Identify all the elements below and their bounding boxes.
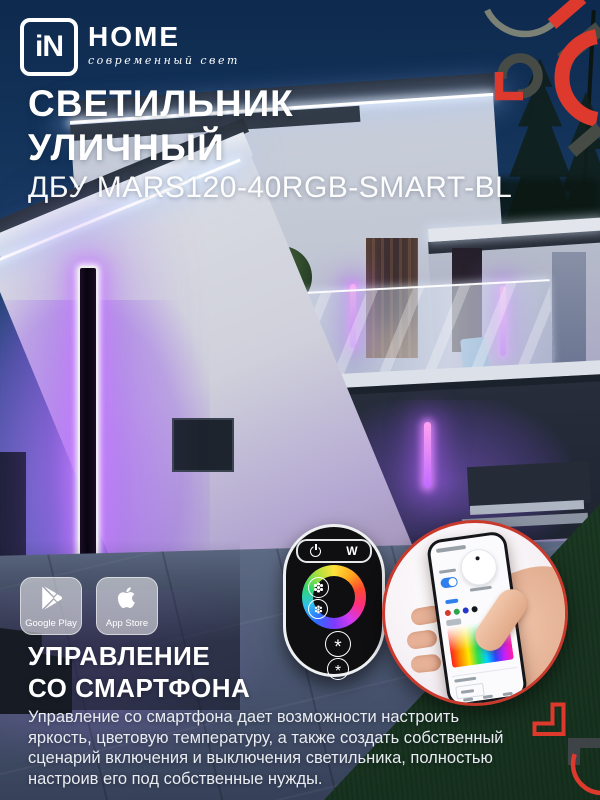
logo-text: HOME современный свет xyxy=(88,18,240,67)
logo-tagline: современный свет xyxy=(88,54,240,67)
title-line-1: СВЕТИЛЬНИК xyxy=(28,82,294,126)
decor-red-bar xyxy=(552,0,582,24)
app-chip xyxy=(446,618,462,626)
effect-button-large: * xyxy=(325,631,351,657)
dark-window xyxy=(172,418,234,472)
page-title: СВЕТИЛЬНИК УЛИЧНЫЙ xyxy=(28,82,294,170)
app-caption xyxy=(470,586,492,592)
body-line: Управление со смартфона дает возможности… xyxy=(28,707,528,728)
google-play-icon xyxy=(38,585,64,611)
remote-top-buttons: W xyxy=(296,539,372,563)
app-color-tab xyxy=(445,598,458,604)
app-title-text xyxy=(436,545,466,553)
logo-mark: iN xyxy=(35,30,63,64)
apple-icon xyxy=(114,585,140,611)
decor-shapes-top-right xyxy=(468,0,600,170)
wall-lamp-purple xyxy=(424,422,431,488)
heading-line-1: УПРАВЛЕНИЕ xyxy=(28,640,250,672)
decor-red-arc xyxy=(562,36,600,120)
divider xyxy=(452,667,517,677)
google-play-label: Google Play xyxy=(25,618,77,629)
decor-gray-bar xyxy=(572,128,600,152)
swatch-red xyxy=(444,610,451,617)
model-number: ДБУ MARS120-40RGB-SMART-BL xyxy=(28,171,512,205)
body-line: настроив его под собственные нужды. xyxy=(28,769,528,790)
brightness-label xyxy=(454,677,476,683)
section-body: Управление со смартфона дает возможности… xyxy=(28,707,528,789)
decor-shapes-bottom-right xyxy=(520,690,600,800)
rgb-color-wheel xyxy=(302,565,366,629)
decor-red-corner xyxy=(499,72,523,96)
app-toggle-switch xyxy=(440,576,458,588)
logo-mark-box: iN xyxy=(20,18,78,76)
body-line: сценарий включения и выключения светильн… xyxy=(28,748,528,769)
brand-logo: iN HOME современный свет xyxy=(20,18,240,76)
brightness-up-button xyxy=(308,577,329,598)
app-label xyxy=(439,568,456,573)
brightness-down-button xyxy=(308,599,328,619)
asterisk-icon: * xyxy=(334,636,341,653)
app-store-badge[interactable]: App Store xyxy=(96,577,158,635)
nav-item xyxy=(503,692,513,696)
heading-line-2: СО СМАРТФОНА xyxy=(28,672,250,704)
nav-item xyxy=(463,697,473,701)
section-heading: УПРАВЛЕНИЕ СО СМАРТФОНА xyxy=(28,640,250,704)
nav-item xyxy=(483,695,493,699)
finger xyxy=(406,629,438,650)
decor-gray-ring xyxy=(502,58,538,94)
led-dots-icon xyxy=(317,608,319,610)
finger xyxy=(410,653,442,673)
title-line-2: УЛИЧНЫЙ xyxy=(28,126,294,170)
google-play-badge[interactable]: Google Play xyxy=(20,577,82,635)
product-card: iN HOME современный свет СВЕТИЛЬНИК УЛИЧ… xyxy=(0,0,600,800)
rgb-remote-control: W * * xyxy=(283,524,385,677)
effect-button-small: * xyxy=(327,658,349,680)
decor-red-l-outline xyxy=(535,705,564,735)
asterisk-icon: * xyxy=(335,661,341,677)
swatch-blue xyxy=(462,607,469,614)
body-line: яркость, цветовую температуру, а также с… xyxy=(28,728,528,749)
bright-window xyxy=(552,252,586,378)
app-store-label: App Store xyxy=(106,618,148,629)
white-mode-button: W xyxy=(346,544,357,558)
led-dots-icon xyxy=(317,586,320,589)
logo-name: HOME xyxy=(88,22,240,52)
swatch-black xyxy=(471,606,478,613)
power-icon xyxy=(310,546,321,557)
swatch-green xyxy=(453,608,460,615)
smartphone-app-badge xyxy=(382,520,568,706)
app-power-circle xyxy=(458,547,499,588)
